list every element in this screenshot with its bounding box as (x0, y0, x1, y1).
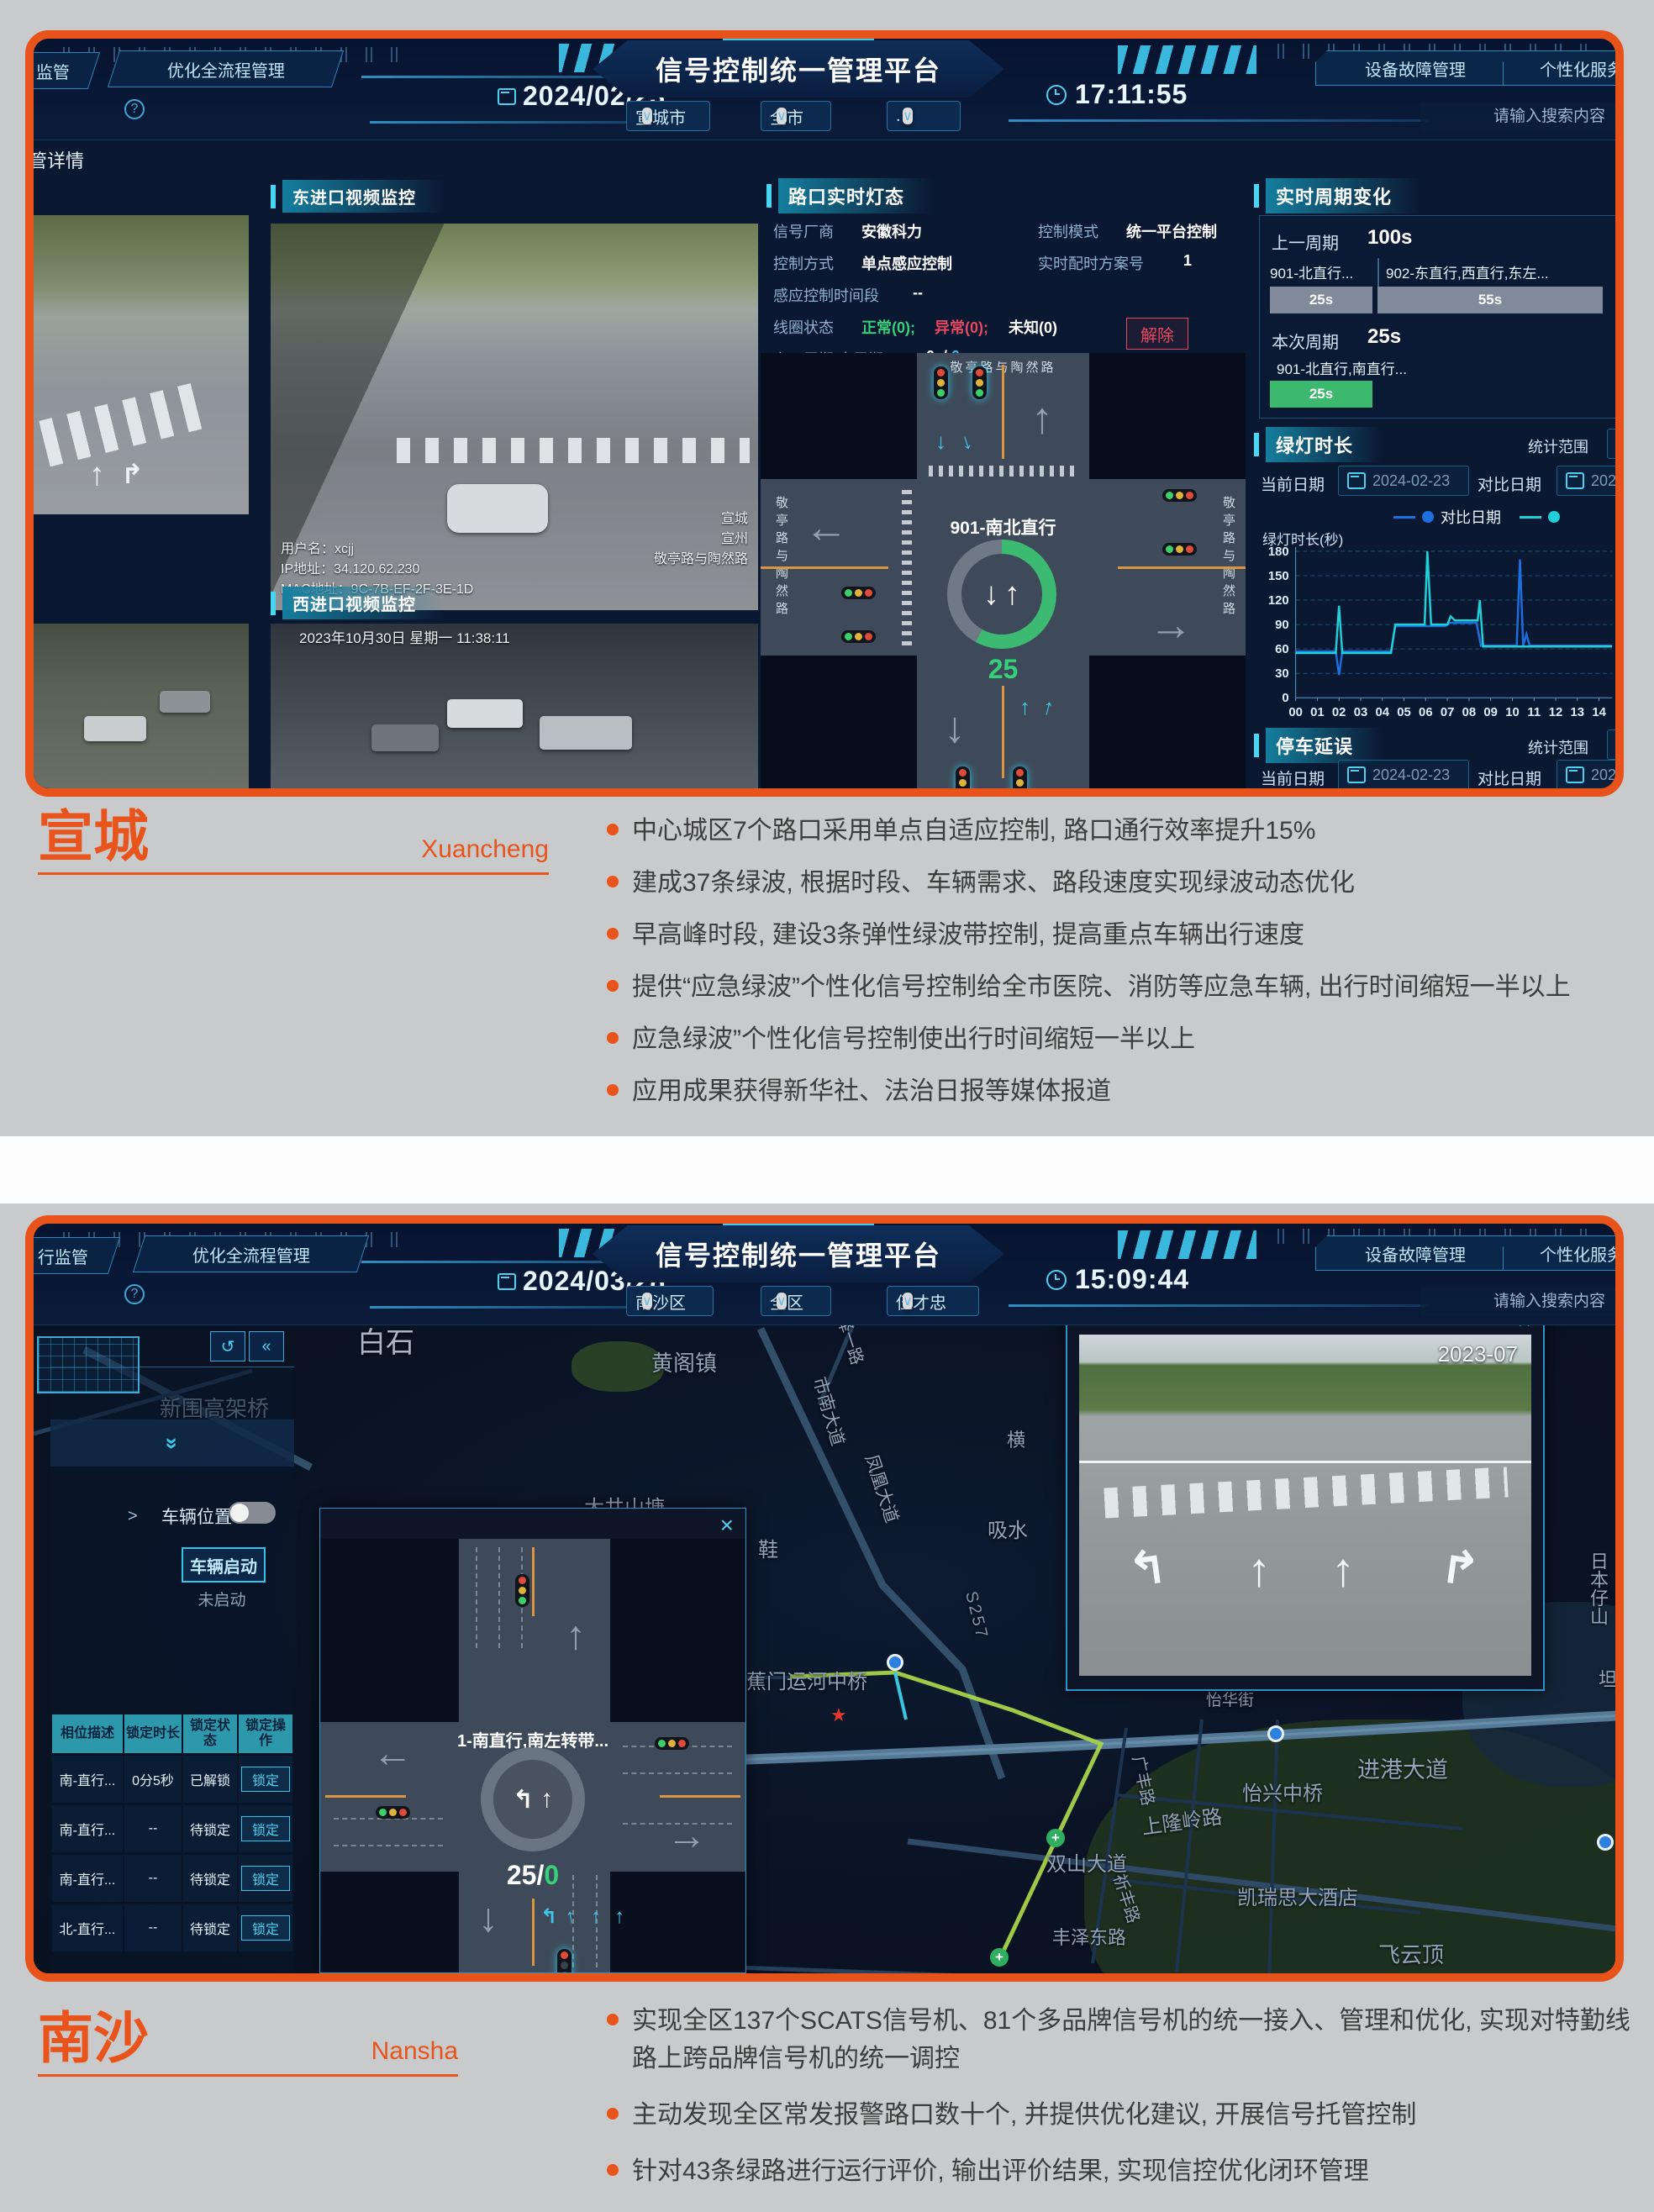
decor-hatch-right (1118, 45, 1256, 74)
decor-line (1009, 119, 1429, 122)
coil-unknown: 未知(0) (1009, 316, 1057, 338)
svg-text:150: 150 (1268, 570, 1289, 583)
legend-line (1520, 516, 1541, 519)
list-item: 主动发现全区常发报警路口数十个, 并提供优化建议, 开展信号托管控制 (607, 2096, 1642, 2134)
bullet-text: 应急绿波”个性化信号控制使出行时间缩短一半以上 (632, 1020, 1195, 1058)
svg-text:03: 03 (1354, 706, 1368, 719)
cell-lock-duration: -- (124, 1904, 182, 1951)
platform-title: 信号控制统一管理平台 (593, 40, 1004, 97)
decor-line (1009, 1304, 1429, 1307)
cell-lock-action: 锁定 (239, 1756, 292, 1803)
cell-lock-status: 待锁定 (183, 1904, 237, 1951)
approach-arrow-up: ↑ (1031, 397, 1053, 440)
device-fault-button[interactable]: 设备故障管理 (1315, 1235, 1515, 1271)
page: 监管 优化全流程管理 ? 2024/02/23 信号控制统一管理平台 宣城市∨ … (0, 0, 1654, 2212)
phase1-duration-bar: 25s (1270, 287, 1372, 313)
lane-arrow: ↓ (935, 430, 946, 452)
help-icon[interactable]: ? (124, 99, 145, 119)
col-lock-duration: 锁定时长 (124, 1714, 182, 1753)
field-value: 安徽科力 (861, 220, 922, 242)
stat-range-select[interactable] (1607, 429, 1624, 459)
list-item: 提供“应急绿波”个性化信号控制给全市医院、消防等应急车辆, 出行时间缩短一半以上 (607, 968, 1628, 1006)
field-label: 信号厂商 (773, 220, 834, 242)
search-input[interactable] (1420, 103, 1615, 131)
map-label: 怡兴中桥 (1242, 1777, 1323, 1806)
tab-process-label: 优化全流程管理 (167, 57, 285, 82)
traffic-light (841, 630, 876, 643)
stop-line (1079, 1461, 1531, 1463)
vehicle (447, 484, 548, 533)
tab-monitor-label: 监管 (36, 59, 70, 83)
close-icon[interactable]: × (720, 1514, 734, 1537)
d2-header: 行监管 优化全流程管理 ? 2024/03/28 信号控制统一管理平台 南沙区∨… (34, 1224, 1615, 1325)
bullet-icon (607, 928, 619, 940)
countdown-sub: 0 (544, 1860, 559, 1890)
lock-button[interactable]: 锁定 (241, 1816, 290, 1841)
bullet-text: 应用成果获得新华社、法治日报等媒体报道 (632, 1072, 1111, 1110)
phase-arrow-up: ↑ (540, 1785, 553, 1814)
legend-label-compare: 对比日期 (1441, 506, 1501, 528)
section-nansha-heading: 南沙 Nansha (38, 2010, 458, 2077)
phase2-duration-bar: 55s (1377, 287, 1603, 313)
device-fault-label: 设备故障管理 (1365, 56, 1466, 81)
crosswalk (929, 466, 1078, 477)
crosswalk (902, 489, 912, 645)
video-feed-east: 用户名：xcjj IP地址：34.120.62.230 MAC地址：9C-7B-… (271, 224, 758, 610)
svg-text:02: 02 (1332, 706, 1346, 719)
personal-service-label: 个性化服务管理 (1540, 1241, 1624, 1266)
cell-lock-duration: -- (124, 1805, 182, 1852)
ring-center: ↓ ↑ (961, 554, 1042, 635)
svg-text:90: 90 (1275, 619, 1289, 632)
release-button[interactable]: 解除 (1126, 318, 1188, 350)
help-glyph: ? (131, 102, 139, 117)
cell-lock-duration: 0分5秒 (124, 1756, 182, 1803)
approach-arrow-left: ← (372, 1734, 413, 1774)
current-cycle-label: 本次周期 (1272, 329, 1339, 353)
svg-text:10: 10 (1505, 706, 1520, 719)
list-item: 应急绿波”个性化信号控制使出行时间缩短一半以上 (607, 1020, 1628, 1058)
svg-text:0: 0 (1282, 692, 1288, 705)
current-cycle-value: 25s (1367, 325, 1401, 349)
clock-icon (1046, 85, 1067, 105)
route-node-icon: + (1046, 1829, 1065, 1847)
field-value: 统一平台控制 (1126, 220, 1217, 242)
time-display: 17:11:55 (1046, 79, 1188, 110)
svg-text:07: 07 (1441, 706, 1455, 719)
map-label: 凯瑞思大酒店 (1237, 1881, 1358, 1910)
svg-text:12: 12 (1549, 706, 1563, 719)
vehicle (160, 691, 210, 713)
chart-legend: 对比日期 (1393, 506, 1560, 528)
phase-arrow-up: ↑ (1004, 577, 1020, 613)
bullet-icon (607, 2014, 619, 2025)
time-text: 15:09:44 (1075, 1264, 1189, 1295)
col-phase-desc: 相位描述 (52, 1714, 123, 1753)
cell-lock-status: 待锁定 (183, 1805, 237, 1852)
col-lock-status: 锁定状态 (183, 1714, 237, 1753)
list-item: 实现全区137个SCATS信号机、81个多品牌信号机的统一接入、管理和优化, 实… (607, 2002, 1642, 2078)
svg-text:00: 00 (1288, 706, 1303, 719)
title-accent-bar (271, 185, 276, 208)
current-date-value: 2024-02-23 (1372, 766, 1450, 784)
svg-text:14: 14 (1592, 706, 1606, 719)
bullet-text: 提供“应急绿波”个性化信号控制给全市医院、消防等应急车辆, 出行时间缩短一半以上 (632, 968, 1571, 1006)
city-name-en: Xuancheng (421, 835, 549, 864)
expand-bar[interactable]: » (50, 1419, 294, 1467)
center-line (1002, 686, 1004, 778)
road-name-left: 敬亭路与陶然路 (772, 496, 790, 619)
traffic-light (557, 1949, 572, 1972)
col-lock-action: 锁定操作 (239, 1714, 292, 1753)
city-dropdown[interactable]: 宣城市∨ (626, 101, 710, 131)
map-label: 蕉门运河中桥 (746, 1665, 867, 1694)
cell-phase-desc: 南-直行... (52, 1756, 123, 1803)
cell-phase-desc: 南-直行... (52, 1805, 123, 1852)
video-timestamp: 2023年10月30日 星期一 11:38:11 (299, 629, 510, 649)
cell-lock-duration: -- (124, 1855, 182, 1902)
calendar-icon (1347, 472, 1366, 489)
svg-text:13: 13 (1571, 706, 1585, 719)
video-popup: × ↰ ↑ ↑ ↱ 2023-07 (1066, 1304, 1545, 1691)
expand-row-icon[interactable]: > (128, 1507, 138, 1526)
approach-arrow-down: ↓ (944, 706, 966, 750)
stat-range-label: 统计范围 (1528, 435, 1588, 457)
current-date-label: 当前日期 (1261, 766, 1325, 789)
map-pin[interactable] (1267, 1725, 1284, 1742)
countdown-value: 25 (988, 654, 1019, 685)
device-fault-button[interactable]: 设备故障管理 (1315, 50, 1515, 86)
map-label: 白石 (357, 1325, 414, 1361)
west-video-title: 西进口视频监控 (271, 587, 445, 619)
bullet-text: 建成37条绿波, 根据时段、车辆需求、路段速度实现绿波动态优化 (632, 864, 1355, 902)
region-select-grid-icon[interactable] (37, 1336, 140, 1393)
bullet-icon (607, 2164, 619, 2176)
east-video-title: 东进口视频监控 (271, 180, 445, 213)
cell-lock-action: 锁定 (239, 1805, 292, 1852)
vehicle-position-label: 车辆位置 (161, 1504, 232, 1529)
title-accent-bar (766, 184, 772, 208)
compare-date-label: 对比日期 (1478, 472, 1541, 495)
osd-road: 敬亭路与陶然路 (654, 550, 748, 570)
approach-arrow-right: → (1149, 603, 1193, 647)
popup-intersection-diagram: ↑ ← → ↓ ↰ ↑ ↑ ↑ 1-南直行,南左转带... ↰ ↑ 25/0 (320, 1539, 745, 1972)
compare-date-value: 2023- (1591, 766, 1624, 784)
list-item: 中心城区7个路口采用单点自适应控制, 路口通行效率提升15% (607, 812, 1628, 850)
section-xuancheng-heading: 宣城 Xuancheng (38, 808, 549, 875)
city-name-en: Nansha (371, 2037, 458, 2066)
map-label: 横 (1007, 1425, 1025, 1452)
legend-dot (1422, 511, 1434, 523)
lane-arrow: ↑ (1019, 696, 1030, 718)
user-dropdown[interactable]: .∨ (887, 101, 961, 131)
area-dropdown[interactable]: 全市∨ (761, 101, 831, 131)
vehicle (540, 716, 632, 750)
field-value: 1 (1183, 252, 1192, 270)
phase1-name: 901-北直行... (1270, 261, 1372, 282)
svg-text:60: 60 (1275, 643, 1289, 656)
vehicle-start-status: 未启动 (182, 1588, 262, 1610)
city-name-cn: 南沙 (38, 2010, 149, 2066)
tab-process-management[interactable]: 优化全流程管理 (133, 1235, 369, 1272)
chevron-down-icon: ∨ (903, 1293, 913, 1309)
stop-delay-panel-title: 停车延误 (1254, 728, 1382, 763)
map-label: 鞋 (758, 1533, 778, 1562)
calendar-icon (1347, 766, 1366, 783)
d1-header: 监管 优化全流程管理 ? 2024/02/23 信号控制统一管理平台 宣城市∨ … (34, 39, 1615, 140)
current-date-label: 当前日期 (1261, 472, 1325, 495)
lane-arrow: ↑ (614, 1907, 624, 1927)
traffic-light (1162, 543, 1197, 556)
list-item: 建成37条绿波, 根据时段、车辆需求、路段速度实现绿波动态优化 (607, 864, 1628, 902)
compare-date-input[interactable]: 2023- (1557, 760, 1624, 790)
prev-cycle-value: 100s (1367, 226, 1412, 250)
calendar-icon (1566, 472, 1584, 489)
traffic-light (655, 1737, 689, 1750)
osd-district: 宣州 (654, 529, 748, 550)
calendar-icon (1566, 766, 1584, 783)
map-label: 飞云顶 (1378, 1938, 1444, 1969)
traffic-light (956, 766, 970, 788)
video-feed-left-top: ↑ ↱ (34, 215, 249, 514)
tab-monitor[interactable]: 行监管 (25, 1237, 120, 1274)
xuancheng-bullet-list: 中心城区7个路口采用单点自适应控制, 路口通行效率提升15% 建成37条绿波, … (607, 812, 1628, 1124)
map-label: 进港大道 (1357, 1751, 1448, 1784)
field-label: 线圈状态 (773, 316, 834, 338)
nansha-bullet-list: 实现全区137个SCATS信号机、81个多品牌信号机的统一接入、管理和优化, 实… (607, 2002, 1642, 2204)
field-value: 单点感应控制 (861, 252, 952, 274)
traffic-light (1013, 766, 1027, 788)
traffic-light (934, 366, 948, 399)
collapse-button[interactable]: « (249, 1331, 284, 1361)
bullet-text: 主动发现全区常发报警路口数十个, 并提供优化建议, 开展信号托管控制 (632, 2096, 1416, 2134)
field-label: 感应控制时间段 (773, 284, 879, 306)
title-accent-bar (1254, 433, 1259, 456)
current-date-input[interactable]: 2024-02-23 (1338, 760, 1469, 790)
field-value: -- (913, 284, 923, 302)
title-accent-bar (1254, 184, 1259, 208)
compare-date-label: 对比日期 (1478, 766, 1541, 789)
phase-lock-table: 相位描述 锁定时长 锁定状态 锁定操作 南-直行... 0分5秒 已解锁 锁定 … (52, 1714, 292, 1951)
cell-lock-status: 已解锁 (183, 1756, 237, 1803)
bullet-text: 实现全区137个SCATS信号机、81个多品牌信号机的统一接入、管理和优化, 实… (632, 2002, 1642, 2078)
table-row: 北-直行... -- 待锁定 锁定 (52, 1904, 292, 1951)
light-state-panel-title: 路口实时灯态 (766, 178, 933, 213)
tab-process-label: 优化全流程管理 (192, 1242, 310, 1267)
approach-arrow-up: ↑ (566, 1616, 586, 1656)
lane-arrow: ↰ (540, 1907, 557, 1927)
compare-date-input[interactable]: 2023- (1557, 466, 1624, 496)
video-feed-left-bottom (34, 624, 249, 788)
list-item: 早高峰时段, 建设3条弹性绿波带控制, 提高重点车辆出行速度 (607, 916, 1628, 954)
coil-normal: 正常(0); (861, 316, 915, 338)
countdown-ring: ↓ ↑ (947, 540, 1056, 649)
green-duration-title-text: 绿灯时长 (1266, 427, 1382, 462)
vehicle-start-button[interactable]: 车辆启动 (182, 1547, 266, 1583)
east-video-title-text: 东进口视频监控 (282, 180, 445, 213)
tab-process-management[interactable]: 优化全流程管理 (108, 50, 344, 87)
vehicle (447, 699, 523, 728)
traffic-light (1162, 489, 1197, 502)
cell-phase-desc: 北-直行... (52, 1904, 123, 1951)
route-node-icon: + (990, 1948, 1009, 1967)
vehicle (84, 716, 146, 741)
traffic-light (841, 587, 876, 599)
svg-text:05: 05 (1397, 706, 1411, 719)
current-date-input[interactable]: 2024-02-23 (1338, 466, 1469, 496)
lane-arrow-marking: ↰ (1125, 1542, 1170, 1594)
prev-cycle-label: 上一周期 (1272, 229, 1339, 254)
center-line (761, 566, 888, 569)
bullet-text: 中心城区7个路口采用单点自适应控制, 路口通行效率提升15% (632, 812, 1315, 850)
vehicle (371, 724, 439, 751)
personal-service-label: 个性化服务管理 (1540, 56, 1624, 81)
legend-dot (1548, 511, 1560, 523)
osd-city: 宣城 (654, 509, 748, 529)
lane-arrow-marking: ↑ (1331, 1546, 1355, 1593)
table-header-row: 相位描述 锁定时长 锁定状态 锁定操作 (52, 1714, 292, 1753)
chevron-down-icon: ∨ (777, 1293, 787, 1309)
field-label: 控制方式 (773, 252, 834, 274)
chevron-down-icon: ∨ (903, 108, 913, 124)
cycle-panel-title-text: 实时周期变化 (1266, 178, 1420, 213)
current-date-value: 2024-02-23 (1372, 472, 1450, 490)
user-dropdown-value: . (896, 107, 901, 126)
west-video-title-text: 西进口视频监控 (282, 587, 445, 619)
lock-button[interactable]: 锁定 (241, 1915, 290, 1941)
bullet-icon (607, 2108, 619, 2120)
tab-monitor-label: 行监管 (38, 1244, 88, 1268)
map-pin[interactable] (1597, 1834, 1614, 1851)
area-dropdown[interactable]: 全区∨ (761, 1286, 831, 1316)
phase-arrow-turn: ↰ (513, 1785, 534, 1814)
lock-button[interactable]: 锁定 (241, 1767, 290, 1792)
approach-arrow-left: ← (804, 506, 848, 550)
camera-location-osd: 宣城 宣州 敬亭路与陶然路 (654, 509, 748, 570)
table-row: 南-直行... -- 待锁定 锁定 (52, 1805, 292, 1852)
personal-service-button[interactable]: 个性化服务管理 (1503, 1235, 1624, 1271)
cycle-panel-title: 实时周期变化 (1254, 178, 1420, 213)
countdown-main: 25/ (507, 1860, 544, 1890)
user-dropdown[interactable]: 伍才忠∨ (887, 1286, 979, 1316)
chevron-down-icon: ∨ (642, 108, 652, 124)
section-divider (0, 1136, 1654, 1203)
bullet-icon (607, 1084, 619, 1096)
svg-text:08: 08 (1462, 706, 1477, 719)
district-dropdown[interactable]: 南沙区∨ (626, 1286, 714, 1316)
dashboard-xuancheng: 监管 优化全流程管理 ? 2024/02/23 信号控制统一管理平台 宣城市∨ … (25, 30, 1624, 797)
map-label: 日本仔山 (1584, 1551, 1611, 1625)
green-duration-panel-title: 绿灯时长 (1254, 427, 1382, 462)
svg-text:120: 120 (1268, 594, 1289, 608)
tab-monitor[interactable]: 监管 (25, 52, 100, 89)
traffic-light (515, 1574, 529, 1607)
lane-arrow-marking: ↑ (89, 459, 105, 491)
approach-arrow-down: ↓ (478, 1899, 498, 1939)
svg-text:11: 11 (1527, 706, 1541, 719)
platform-title: 信号控制统一管理平台 (593, 1225, 1004, 1282)
table-row: 南-直行... -- 待锁定 锁定 (52, 1855, 292, 1902)
svg-text:30: 30 (1275, 667, 1289, 681)
intersection-popup: × ↑ (319, 1508, 746, 1973)
phase2-name: 902-东直行,西直行,东左... (1386, 261, 1604, 282)
green-duration-chart: 0306090120150180000102030405060708091011… (1257, 543, 1624, 722)
traffic-light (972, 366, 987, 399)
lane-arrow: ↑ (591, 1907, 601, 1927)
svg-text:01: 01 (1310, 706, 1325, 719)
coil-abnormal: 异常(0); (935, 316, 988, 338)
list-item: 针对43条绿路进行运行评价, 输出评价结果, 实现信控优化闭环管理 (607, 2152, 1642, 2190)
calendar-icon (498, 1273, 516, 1290)
map-label: 双山大道 (1046, 1847, 1127, 1877)
stop-delay-title-text: 停车延误 (1266, 728, 1382, 763)
map-label: 吸水 (988, 1514, 1028, 1543)
dashboard-nansha: 白石 新围高架桥 黄阁镇 东泽一路 市南大道 大井山塘 凤凰大道 吸水 鞋 蕉门… (25, 1215, 1624, 1982)
table-row: 南-直行... 0分5秒 已解锁 锁定 (52, 1756, 292, 1803)
search-input[interactable] (1420, 1288, 1615, 1316)
phase-name: 901-南北直行 (950, 514, 1056, 540)
light-state-title-text: 路口实时灯态 (778, 178, 933, 213)
chevron-down-icon: ∨ (642, 1293, 652, 1309)
current-phase-name: 901-北直行,南直行... (1277, 357, 1529, 378)
map-pin[interactable] (887, 1654, 903, 1671)
svg-text:180: 180 (1268, 545, 1289, 559)
title-accent-bar (271, 592, 276, 615)
undo-button[interactable]: ↺ (210, 1331, 245, 1361)
chevron-down-icon: ∨ (777, 108, 787, 124)
help-glyph: ? (131, 1287, 139, 1302)
svg-text:04: 04 (1375, 706, 1389, 719)
center-line (1118, 566, 1246, 569)
city-name-cn: 宣城 (38, 808, 149, 864)
time-text: 17:11:55 (1075, 79, 1188, 110)
poi-star-icon: ★ (830, 1704, 847, 1726)
calendar-icon (498, 88, 516, 105)
stat-range-label: 统计范围 (1528, 736, 1588, 758)
help-icon[interactable]: ? (124, 1284, 145, 1304)
svg-text:09: 09 (1483, 706, 1498, 719)
heading-underline (38, 872, 549, 875)
decor-hatch-right (1118, 1230, 1256, 1259)
area-dropdown-value: 全区 (770, 1289, 803, 1314)
video-feed-west: 2023年10月30日 星期一 11:38:11 (271, 624, 758, 788)
field-label: 实时配时方案号 (1038, 252, 1144, 274)
time-display: 15:09:44 (1046, 1264, 1189, 1295)
map-label: 怡华街 (1206, 1688, 1254, 1710)
lock-button[interactable]: 锁定 (241, 1866, 290, 1891)
chevron-double-down-icon: » (160, 1437, 186, 1449)
stat-range-select[interactable] (1607, 729, 1624, 760)
map-label: 丰泽东路 (1052, 1923, 1126, 1950)
bullet-text: 早高峰时段, 建设3条弹性绿波带控制, 提高重点车辆出行速度 (632, 916, 1304, 954)
countdown-ring: ↰ ↑ (481, 1747, 585, 1851)
intersection-diagram: 敬亭路与陶然路 敬亭路与陶然路 敬亭路与陶然路 ↑ ← → ↓ ↓ ↓ ↑ ↑ (761, 353, 1246, 788)
title-accent-bar (1254, 734, 1259, 757)
phase-arrow-down: ↓ (983, 577, 999, 613)
bullet-icon (607, 876, 619, 887)
map-label: 坦 (1599, 1665, 1615, 1692)
traffic-light (376, 1806, 410, 1819)
current-phase-duration-bar: 25s (1270, 381, 1372, 408)
cell-lock-action: 锁定 (239, 1904, 292, 1951)
video-timestamp: 2023-07 (1438, 1341, 1518, 1367)
area-dropdown-value: 全市 (770, 104, 803, 129)
cell-phase-desc: 南-直行... (52, 1855, 123, 1902)
bullet-icon (607, 980, 619, 992)
heading-underline (38, 2074, 458, 2077)
vehicle-position-toggle[interactable] (229, 1502, 276, 1524)
personal-service-button[interactable]: 个性化服务管理 (1503, 50, 1624, 86)
